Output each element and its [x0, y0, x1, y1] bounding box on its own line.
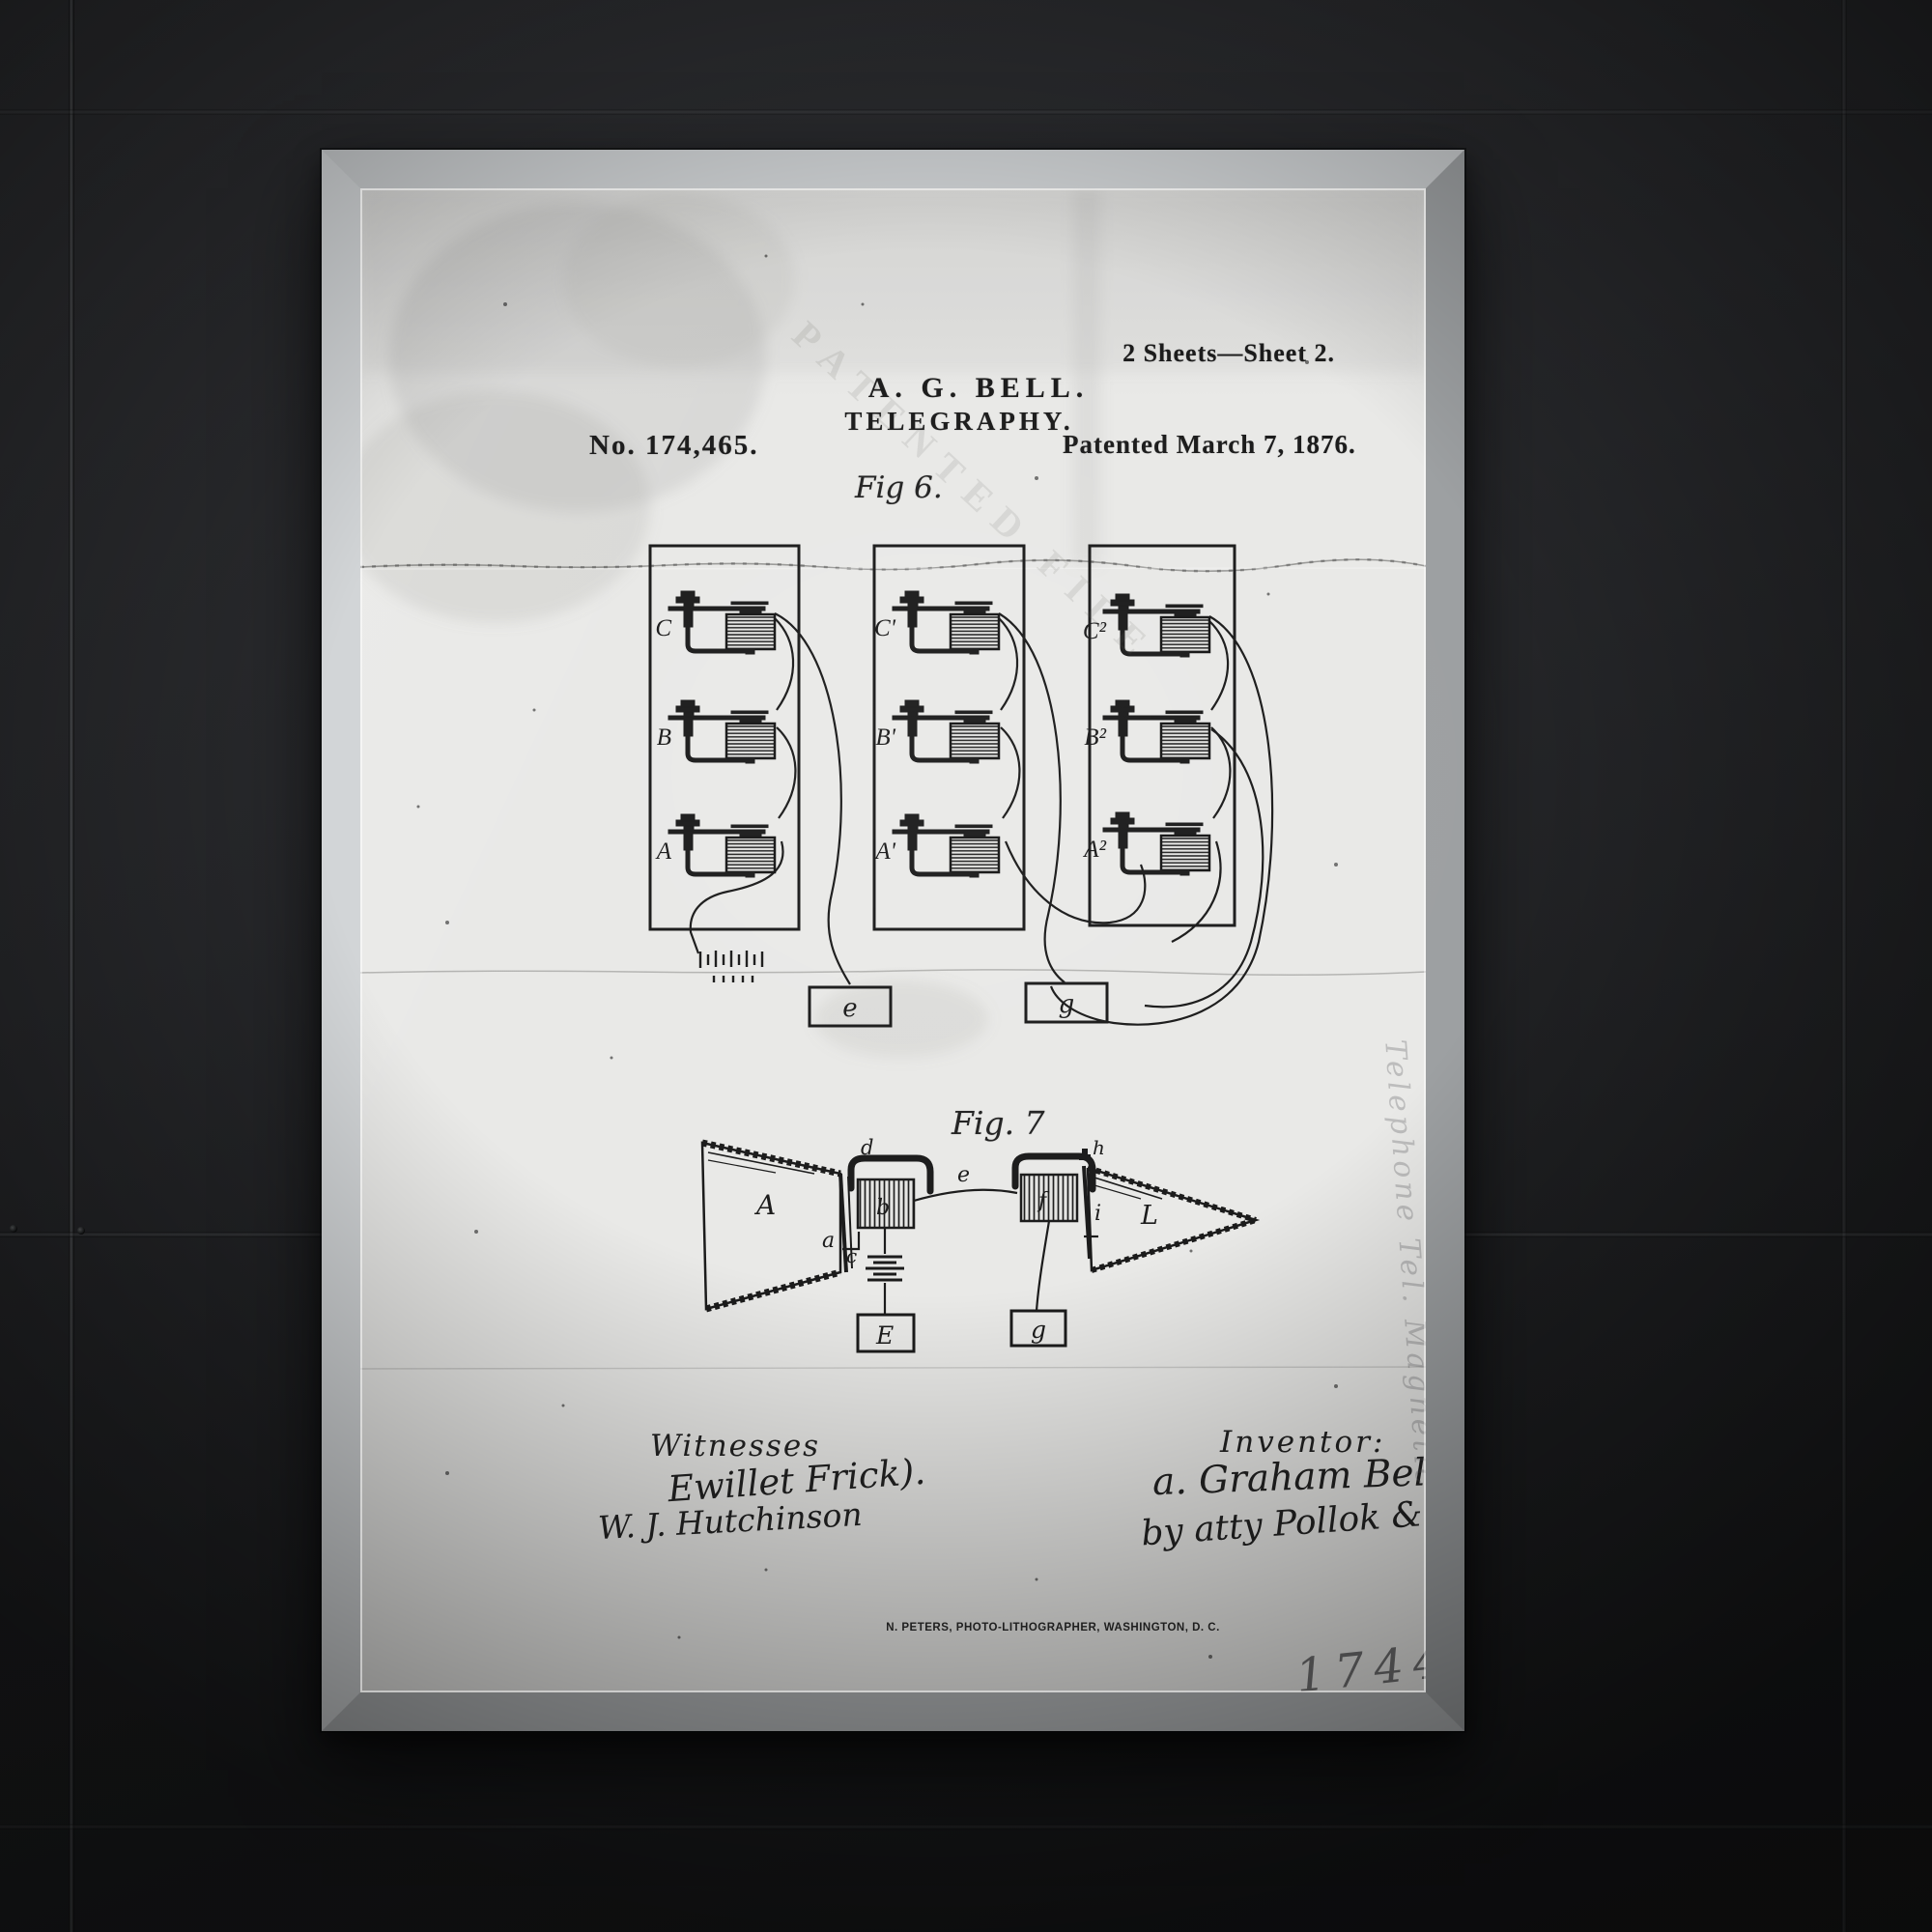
fig7-label-a: a [822, 1229, 835, 1253]
fig7-box-g-label: g [1031, 1316, 1046, 1344]
wall-bolt [77, 1227, 85, 1235]
unit-label: A [655, 838, 672, 865]
photo-scene: C B A C' B' A' C² B² A² e g [0, 0, 1932, 1932]
inventor-name-heading: A. G. BELL. [868, 372, 1090, 405]
fig6-caption: Fig 6. [855, 470, 943, 505]
fold-creases [360, 559, 1426, 1369]
patent-sheet: C B A C' B' A' C² B² A² e g [360, 188, 1426, 1692]
fig7-coil-f [1021, 1175, 1077, 1221]
fig7-box-E-label: E [875, 1321, 894, 1350]
unit-label: B' [875, 724, 895, 751]
fig7-label-L: L [1140, 1201, 1158, 1231]
unit-label: C' [874, 615, 896, 641]
fig6-diagram: C B A C' B' A' C² B² A² e g [650, 546, 1272, 1026]
wall-seam-horizontal-top [0, 109, 1932, 115]
fig7-caption: Fig. 7 [952, 1104, 1045, 1142]
wall-seam-vertical-left [69, 0, 74, 1932]
fig7-label-h: h [1093, 1136, 1105, 1159]
unit-label: C [655, 615, 671, 641]
battery-symbol [866, 1257, 904, 1280]
fig7-label-i: i [1094, 1202, 1101, 1226]
ground-symbol [700, 951, 762, 982]
witnesses-heading: Witnesses [650, 1429, 820, 1463]
wall-bolt [10, 1225, 17, 1233]
fig7-label-d: d [861, 1136, 873, 1159]
sheet-info: 2 Sheets—Sheet 2. [1122, 339, 1335, 368]
fig6-station-box-1 [650, 546, 799, 929]
poster-frame: C B A C' B' A' C² B² A² e g [322, 150, 1464, 1731]
patent-number: No. 174,465. [589, 430, 758, 462]
unit-label: B² [1084, 724, 1106, 751]
terminal-box-g-label: g [1059, 990, 1075, 1019]
wall-seam-vertical-right [1841, 0, 1847, 1932]
unit-label: B [657, 724, 671, 751]
unit-label: A² [1082, 837, 1106, 863]
fig7-label-b: b [876, 1196, 890, 1220]
fig7-label-e: e [957, 1163, 970, 1187]
terminal-box-e-label: e [842, 994, 857, 1023]
fig7-label-c: c [846, 1244, 857, 1267]
patent-date: Patented March 7, 1876. [1063, 430, 1356, 460]
fig7-diagram: A d a c b e f h i L E g [702, 1136, 1256, 1351]
lithographer-credit: N. PETERS, PHOTO-LITHOGRAPHER, WASHINGTO… [886, 1622, 1220, 1634]
fig7-label-A: A [753, 1189, 776, 1221]
patent-title: TELEGRAPHY. [844, 407, 1073, 437]
fig6-wires [691, 613, 1272, 1025]
wall-seam-horizontal-bottom [0, 1824, 1932, 1830]
unit-label: A' [873, 838, 895, 865]
fig7-cone-left [702, 1143, 840, 1309]
fig6-station-box-2 [874, 546, 1024, 929]
